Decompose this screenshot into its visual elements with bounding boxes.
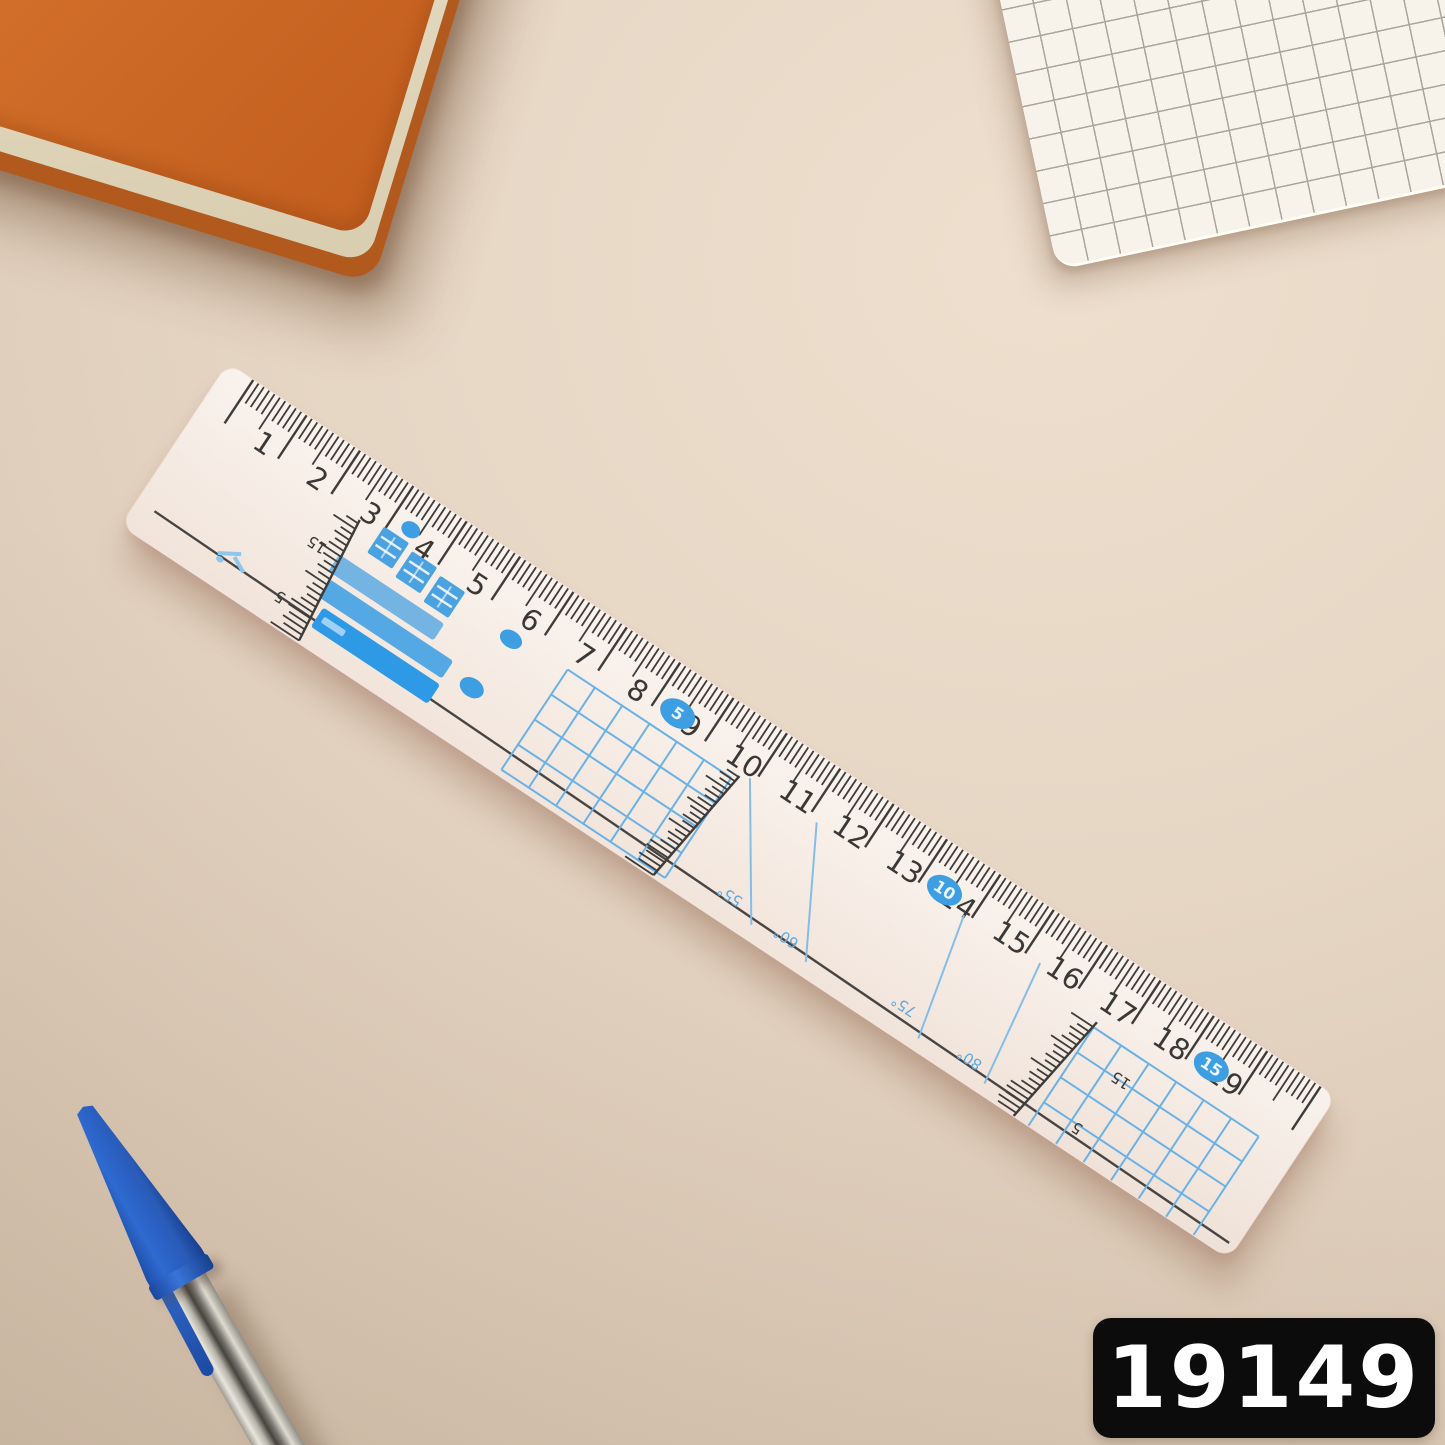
svg-text:7: 7 (567, 636, 601, 675)
grid-notepad (985, 0, 1445, 270)
svg-text:12: 12 (826, 808, 876, 857)
svg-text:11: 11 (773, 772, 823, 821)
desk-scene: 1234567891011121314151617181951015155155… (0, 0, 1445, 1445)
svg-text:75°: 75° (888, 991, 920, 1021)
small-blue-mark (214, 543, 251, 577)
orange-notebook (0, 0, 584, 237)
svg-text:5: 5 (460, 565, 494, 604)
svg-text:18: 18 (1147, 1020, 1197, 1069)
svg-text:10: 10 (720, 737, 770, 786)
svg-text:3: 3 (354, 495, 388, 534)
ruler-markings: 1234567891011121314151617181951015155155… (120, 363, 1337, 1259)
product-code-text: 19149 (1107, 1335, 1421, 1421)
svg-text:5: 5 (271, 587, 289, 607)
svg-text:13: 13 (880, 843, 930, 892)
ballpoint-pen (48, 1082, 325, 1445)
pen-barrel (165, 1272, 320, 1445)
svg-text:80°: 80° (953, 1044, 985, 1074)
product-code-badge: 19149 (1093, 1318, 1435, 1438)
transparent-ruler: 1234567891011121314151617181951015155155… (120, 362, 1337, 1260)
notebook-front-cover (0, 0, 584, 237)
svg-text:15: 15 (1108, 1067, 1134, 1093)
svg-text:55°: 55° (714, 881, 746, 911)
cm-number-labels: 12345678910111213141516171819 (247, 424, 1249, 1103)
svg-text:1: 1 (247, 424, 281, 463)
svg-text:16: 16 (1040, 949, 1090, 998)
pattern-grid-left (501, 670, 731, 878)
svg-text:2: 2 (300, 459, 334, 498)
svg-text:8: 8 (621, 671, 655, 710)
cm-tick-scale (225, 380, 1321, 1130)
svg-text:15: 15 (986, 914, 1036, 963)
pen-cap (55, 1091, 205, 1288)
svg-text:6: 6 (514, 601, 548, 640)
svg-text:17: 17 (1093, 984, 1143, 1033)
